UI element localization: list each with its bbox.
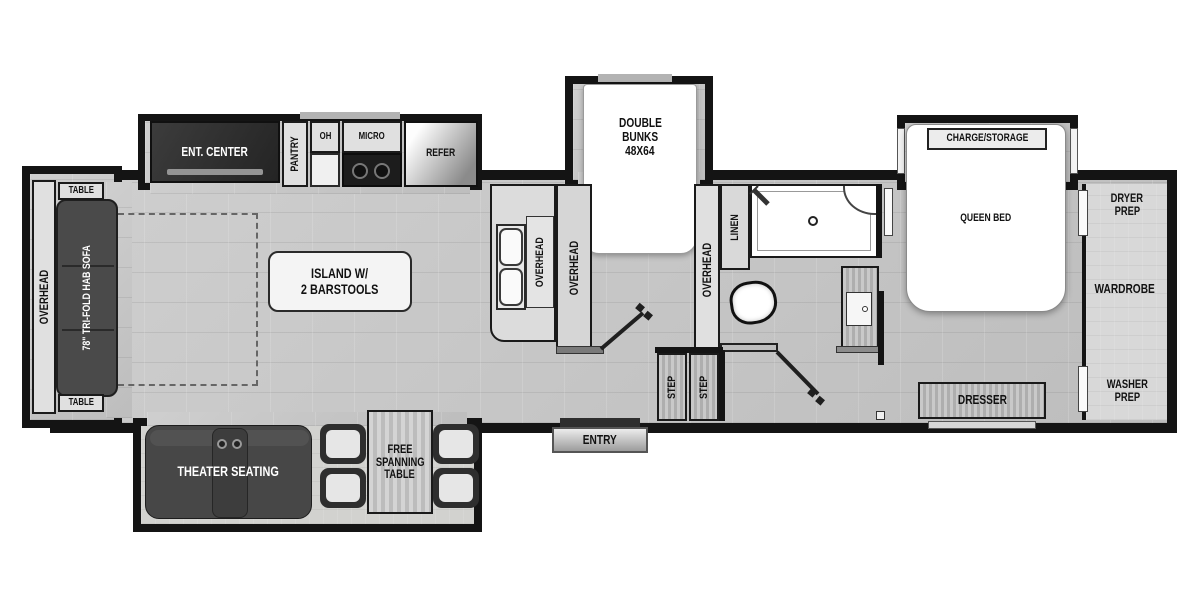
step-1-label: STEP [666,375,678,398]
theater-seating: THEATER SEATING [145,425,312,519]
rear-overhead-label: OVERHEAD [37,270,51,324]
burner [352,163,368,179]
pantry-label: PANTRY [289,136,301,171]
kitchen-sink-counter: OVERHEAD [490,184,556,342]
sofa-label: 78" TRI-FOLD HAB SOFA [81,245,93,350]
microwave-cabinet: MICRO [342,121,402,153]
end-table-top: TABLE [58,182,104,200]
step-2: STEP [689,353,719,421]
rear-overhead-cabinet: OVERHEAD [32,180,56,414]
wardrobe-label: WARDROBE [1086,282,1164,296]
entry-step: ENTRY [552,427,648,453]
entertainment-center-label: ENT. CENTER [172,145,257,159]
double-bunks-bed: DOUBLE BUNKS 48X64 [583,84,697,254]
bunks-label-2: BUNKS [617,130,663,144]
dresser: DRESSER [918,382,1046,419]
double-sink [496,224,526,310]
chair-cushion [326,430,360,458]
linen-label: LINEN [729,214,741,240]
counter-overhead-label: OVERHEAD [567,241,581,295]
ent-center-shelf [167,169,263,175]
bunks-label-3: 48X64 [621,144,659,158]
refrigerator-label: REFER [422,148,459,160]
queen-bed-label: QUEEN BED [953,213,1018,225]
wall-notch [876,411,885,420]
pantry-cabinet: PANTRY [282,121,308,187]
vanity-faucet [862,306,868,312]
table-label-3: TABLE [380,468,419,481]
floorplan-canvas: OVERHEAD TABLE TABLE 78" TRI-FOLD HAB SO… [0,0,1200,600]
pocket-door-panel [884,188,893,236]
bath-vanity [841,266,879,352]
entry-label: ENTRY [578,433,622,447]
island-label-1: ISLAND W/ [303,266,376,281]
charge-storage-headboard: CHARGE/STORAGE [927,128,1047,150]
sink-overhead-label: OVERHEAD [534,237,546,287]
charge-storage-label: CHARGE/STORAGE [935,133,1040,145]
oh-cabinet: OH [310,121,340,153]
linen-closet: LINEN [720,184,750,270]
chair-cushion [439,430,473,458]
washer-prep-label: WASHER PREP [1092,378,1162,404]
kitchen-slide-window [300,112,400,119]
range-stove [342,153,402,187]
chair-cushion [326,474,360,502]
vanity-base [836,346,880,353]
slide-rail [897,128,905,174]
bath-bedroom-wall [878,291,884,365]
dryer-prep-label: DRYER PREP [1092,192,1162,218]
kitchen-island: ISLAND W/ 2 BARSTOOLS [268,251,412,312]
dining-chair [433,424,479,464]
bedroom-window [928,421,1036,429]
entry-threshold [560,418,640,427]
bath-wall-stub [720,343,778,352]
dresser-label: DRESSER [951,393,1014,407]
bunkroom-overhead-label: OVERHEAD [700,243,714,297]
slide-rail [1070,128,1078,174]
shower-drain [808,216,818,226]
counter-plinth [556,346,604,354]
step-1: STEP [657,353,687,421]
chair-cushion [439,474,473,502]
theater-seating-label: THEATER SEATING [163,464,293,479]
island-label-2: 2 BARSTOOLS [290,282,389,297]
shower-wall [876,184,882,258]
wardrobe-door-panel [1078,190,1088,236]
tri-fold-sofa: 78" TRI-FOLD HAB SOFA [56,199,118,397]
step-2-label: STEP [698,375,710,398]
dining-chair [433,468,479,508]
kitchen-counter-strip: OVERHEAD [556,184,592,352]
end-table-bottom: TABLE [58,394,104,412]
bunkroom-overhead-cabinet: OVERHEAD [694,184,720,356]
entertainment-center: ENT. CENTER [150,121,280,183]
dining-chair [320,424,366,464]
shower [750,184,878,258]
sink-bowl [499,228,523,266]
bunks-label-1: DOUBLE [613,116,668,130]
end-table-bottom-label: TABLE [65,398,98,409]
burner [374,163,390,179]
kitchen-counter-under-oh [310,153,340,187]
bunk-slide-window [598,74,672,82]
oh-cabinet-label: OH [318,132,333,143]
wardrobe-door-panel [1078,366,1088,412]
free-spanning-table: FREE SPANNING TABLE [367,410,433,514]
sink-overhead-cabinet: OVERHEAD [526,216,554,308]
dining-chair [320,468,366,508]
microwave-label: MICRO [355,132,388,143]
step-side-wall [719,350,725,421]
sink-bowl [499,268,523,306]
vanity-sink [846,292,872,326]
slide-travel-outline [118,213,258,386]
end-table-top-label: TABLE [65,186,98,197]
queen-bed: CHARGE/STORAGE QUEEN BED [906,124,1066,312]
refrigerator: REFER [404,121,478,187]
